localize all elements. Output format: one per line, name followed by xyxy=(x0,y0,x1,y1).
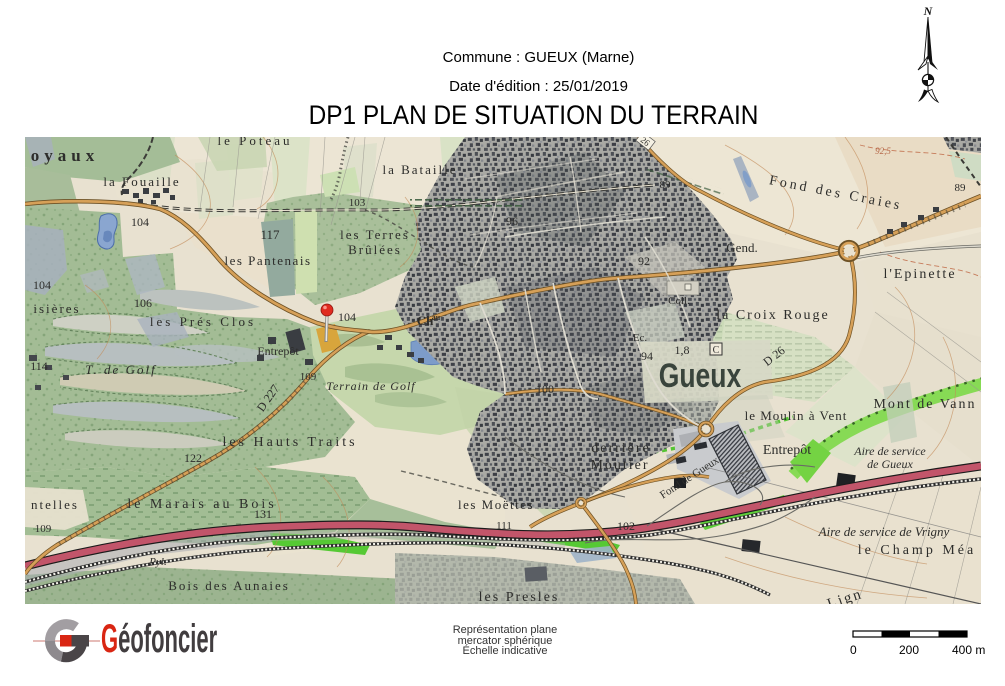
svg-text:Coll.: Coll. xyxy=(668,295,690,307)
svg-text:Bois des Aunaies: Bois des Aunaies xyxy=(168,578,290,593)
svg-text:104: 104 xyxy=(33,278,51,292)
svg-text:92,5: 92,5 xyxy=(875,146,891,156)
svg-text:au: au xyxy=(432,313,441,322)
svg-text:les Moëttes: les Moëttes xyxy=(458,497,534,512)
svg-text:Ec.: Ec. xyxy=(633,332,648,344)
svg-text:109: 109 xyxy=(300,371,317,383)
svg-text:109: 109 xyxy=(35,523,52,535)
svg-text:Mont de Vann: Mont de Vann xyxy=(873,397,976,412)
svg-text:oyaux: oyaux xyxy=(31,146,99,165)
svg-text:Entrepôt: Entrepôt xyxy=(257,344,299,358)
svg-text:de Gueux: de Gueux xyxy=(867,457,913,471)
svg-text:Pyl.: Pyl. xyxy=(148,556,166,568)
svg-text:Moutier: Moutier xyxy=(590,458,649,473)
svg-text:1,8: 1,8 xyxy=(675,343,690,357)
svg-text:Aire de service de Vrigny: Aire de service de Vrigny xyxy=(818,524,950,539)
svg-text:92: 92 xyxy=(638,254,650,268)
svg-text:isières: isières xyxy=(33,301,80,316)
svg-text:le Marais au Bois: le Marais au Bois xyxy=(127,497,276,512)
svg-text:N: N xyxy=(923,4,934,18)
svg-text:le Poteau: le Poteau xyxy=(217,137,292,148)
svg-text:Gend.: Gend. xyxy=(726,240,757,255)
svg-text:Entrepôt: Entrepôt xyxy=(763,443,811,458)
svg-text:102: 102 xyxy=(617,519,635,533)
svg-text:les Pantenais: les Pantenais xyxy=(224,253,311,268)
svg-text:le Moulin à Vent: le Moulin à Vent xyxy=(745,408,848,423)
svg-text:117: 117 xyxy=(260,227,280,242)
svg-text:ntelles: ntelles xyxy=(31,497,79,512)
svg-text:104: 104 xyxy=(338,310,356,324)
svg-text:104: 104 xyxy=(131,215,149,229)
svg-text:Aire de service: Aire de service xyxy=(853,444,926,458)
svg-text:Terrain de Golf: Terrain de Golf xyxy=(326,379,416,393)
svg-text:derrière: derrière xyxy=(591,441,651,456)
svg-text:T. de Golf: T. de Golf xyxy=(85,362,157,377)
svg-text:les Prés Clos: les Prés Clos xyxy=(150,314,256,329)
svg-text:96: 96 xyxy=(506,214,518,228)
svg-text:les Presles: les Presles xyxy=(479,590,560,604)
svg-text:C: C xyxy=(713,345,720,356)
svg-text:200: 200 xyxy=(899,643,919,657)
svg-text:89: 89 xyxy=(660,179,672,191)
svg-text:le Champ Méa: le Champ Méa xyxy=(858,543,976,558)
svg-text:400 m: 400 m xyxy=(952,643,985,657)
svg-text:la Bataille: la Bataille xyxy=(382,162,457,177)
svg-text:0: 0 xyxy=(850,643,857,657)
svg-text:la Fouaille: la Fouaille xyxy=(103,174,180,189)
svg-text:103: 103 xyxy=(349,197,366,209)
svg-text:la Croix Rouge: la Croix Rouge xyxy=(716,308,830,323)
svg-text:les Hauts Traits: les Hauts Traits xyxy=(222,435,357,450)
svg-text:les Terres: les Terres xyxy=(340,227,410,242)
svg-text:l'Epinette: l'Epinette xyxy=(883,267,956,282)
svg-text:Brûlées: Brûlées xyxy=(348,242,402,257)
svg-text:122: 122 xyxy=(184,451,202,465)
svg-text:Gueux: Gueux xyxy=(659,357,742,395)
svg-text:106: 106 xyxy=(134,296,152,310)
svg-text:100: 100 xyxy=(536,382,554,396)
svg-text:89: 89 xyxy=(955,182,967,194)
svg-text:94: 94 xyxy=(641,349,653,363)
svg-text:114: 114 xyxy=(30,359,48,373)
svg-text:111: 111 xyxy=(496,520,512,532)
